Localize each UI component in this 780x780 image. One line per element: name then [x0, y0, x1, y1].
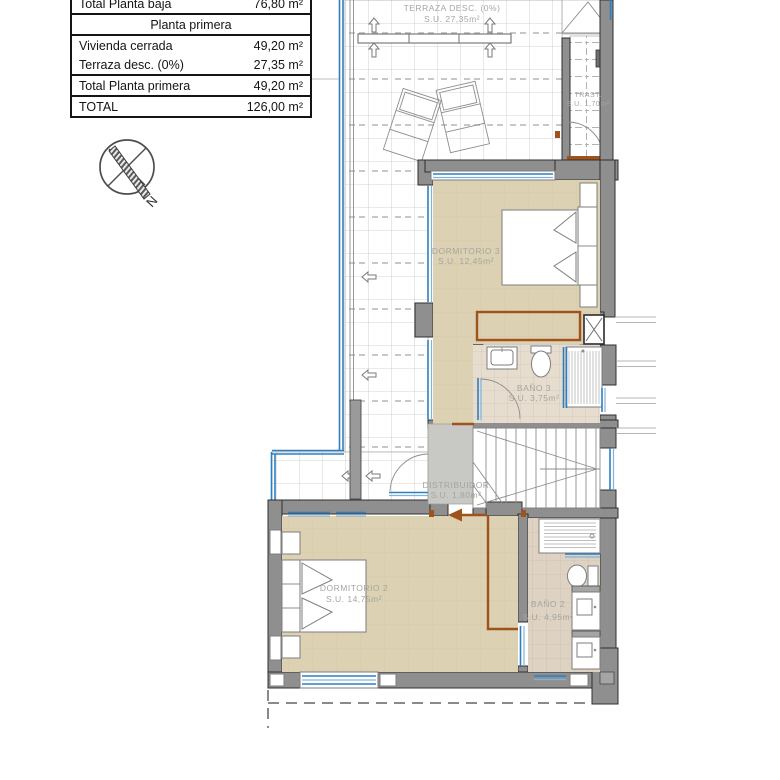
room-label: TRAST.	[574, 92, 601, 99]
room-label: BAÑO 2	[531, 599, 565, 609]
pergola-beam	[358, 34, 511, 43]
row-value: 126,00 m²	[247, 100, 303, 114]
table-row: Terraza desc. (0%) 27,35 m²	[72, 55, 310, 76]
room-area-label: S.U. 3,75m²	[509, 393, 560, 403]
room-label: TERRAZA DESC. (0%)	[404, 3, 501, 13]
room-area-label: S.U. 12,45m²	[438, 256, 494, 266]
row-label: Total Planta primera	[79, 79, 190, 93]
row-label: TOTAL	[79, 100, 118, 114]
row-value: 76,80 m²	[254, 0, 303, 11]
stairs-window	[610, 448, 614, 490]
bano-2: BAÑO 2 S.U. 4,95m²	[521, 518, 601, 680]
door-threshold	[567, 156, 604, 160]
row-label: Vivienda cerrada	[79, 39, 173, 53]
room-label: BAÑO 3	[517, 383, 551, 393]
area-table: Total Planta baja 76,80 m² Planta primer…	[70, 0, 312, 118]
table-row: Total Planta primera 49,20 m²	[72, 76, 310, 97]
bano-3: BAÑO 3 S.U. 3,75m²	[473, 345, 602, 423]
door-bano-2	[521, 626, 525, 666]
sink-bano-3	[487, 347, 517, 369]
row-value: 27,35 m²	[254, 58, 303, 72]
room-label: DORMITORIO 3	[432, 246, 500, 256]
room-area-label: S.U. 14,75m²	[326, 594, 382, 604]
plot-boundary	[268, 690, 592, 728]
extension-lines	[616, 317, 656, 434]
floorplan-page: Total Planta baja 76,80 m² Planta primer…	[0, 0, 780, 780]
row-value: 49,20 m²	[254, 79, 303, 93]
shower-bano-3	[564, 347, 603, 408]
staircase	[473, 428, 614, 508]
row-label: Total Planta baja	[79, 0, 171, 11]
room-area-label: S.U. 27,35m²	[424, 14, 480, 24]
room-area-label: S.U. 4,95m²	[523, 612, 574, 622]
room-area-label: S.U. 1,80m²	[431, 490, 482, 500]
table-row: TOTAL 126,00 m²	[72, 97, 310, 116]
table-row: Total Planta baja 76,80 m²	[72, 0, 310, 15]
sink-bano-2	[572, 631, 600, 669]
room-area-label: S.U. 1,70m²	[567, 101, 610, 108]
row-value: 49,20 m²	[254, 39, 303, 53]
toilet-bano-3	[531, 346, 551, 377]
bathtub	[539, 519, 600, 557]
table-section-header: Planta primera	[72, 15, 310, 36]
sliding-door	[300, 672, 378, 688]
sink-bano-2	[572, 586, 600, 630]
dormitorio-2: DORMITORIO 2 S.U. 14,75m²	[282, 509, 518, 689]
section-title: Planta primera	[150, 18, 231, 32]
table-row: Vivienda cerrada 49,20 m²	[72, 36, 310, 55]
shaft-box	[584, 315, 604, 344]
room-label: DISTRIBUIDOR	[423, 480, 490, 490]
toilet-bano-2	[568, 565, 599, 587]
row-label: Terraza desc. (0%)	[79, 58, 184, 72]
room-label: DORMITORIO 2	[320, 583, 388, 593]
